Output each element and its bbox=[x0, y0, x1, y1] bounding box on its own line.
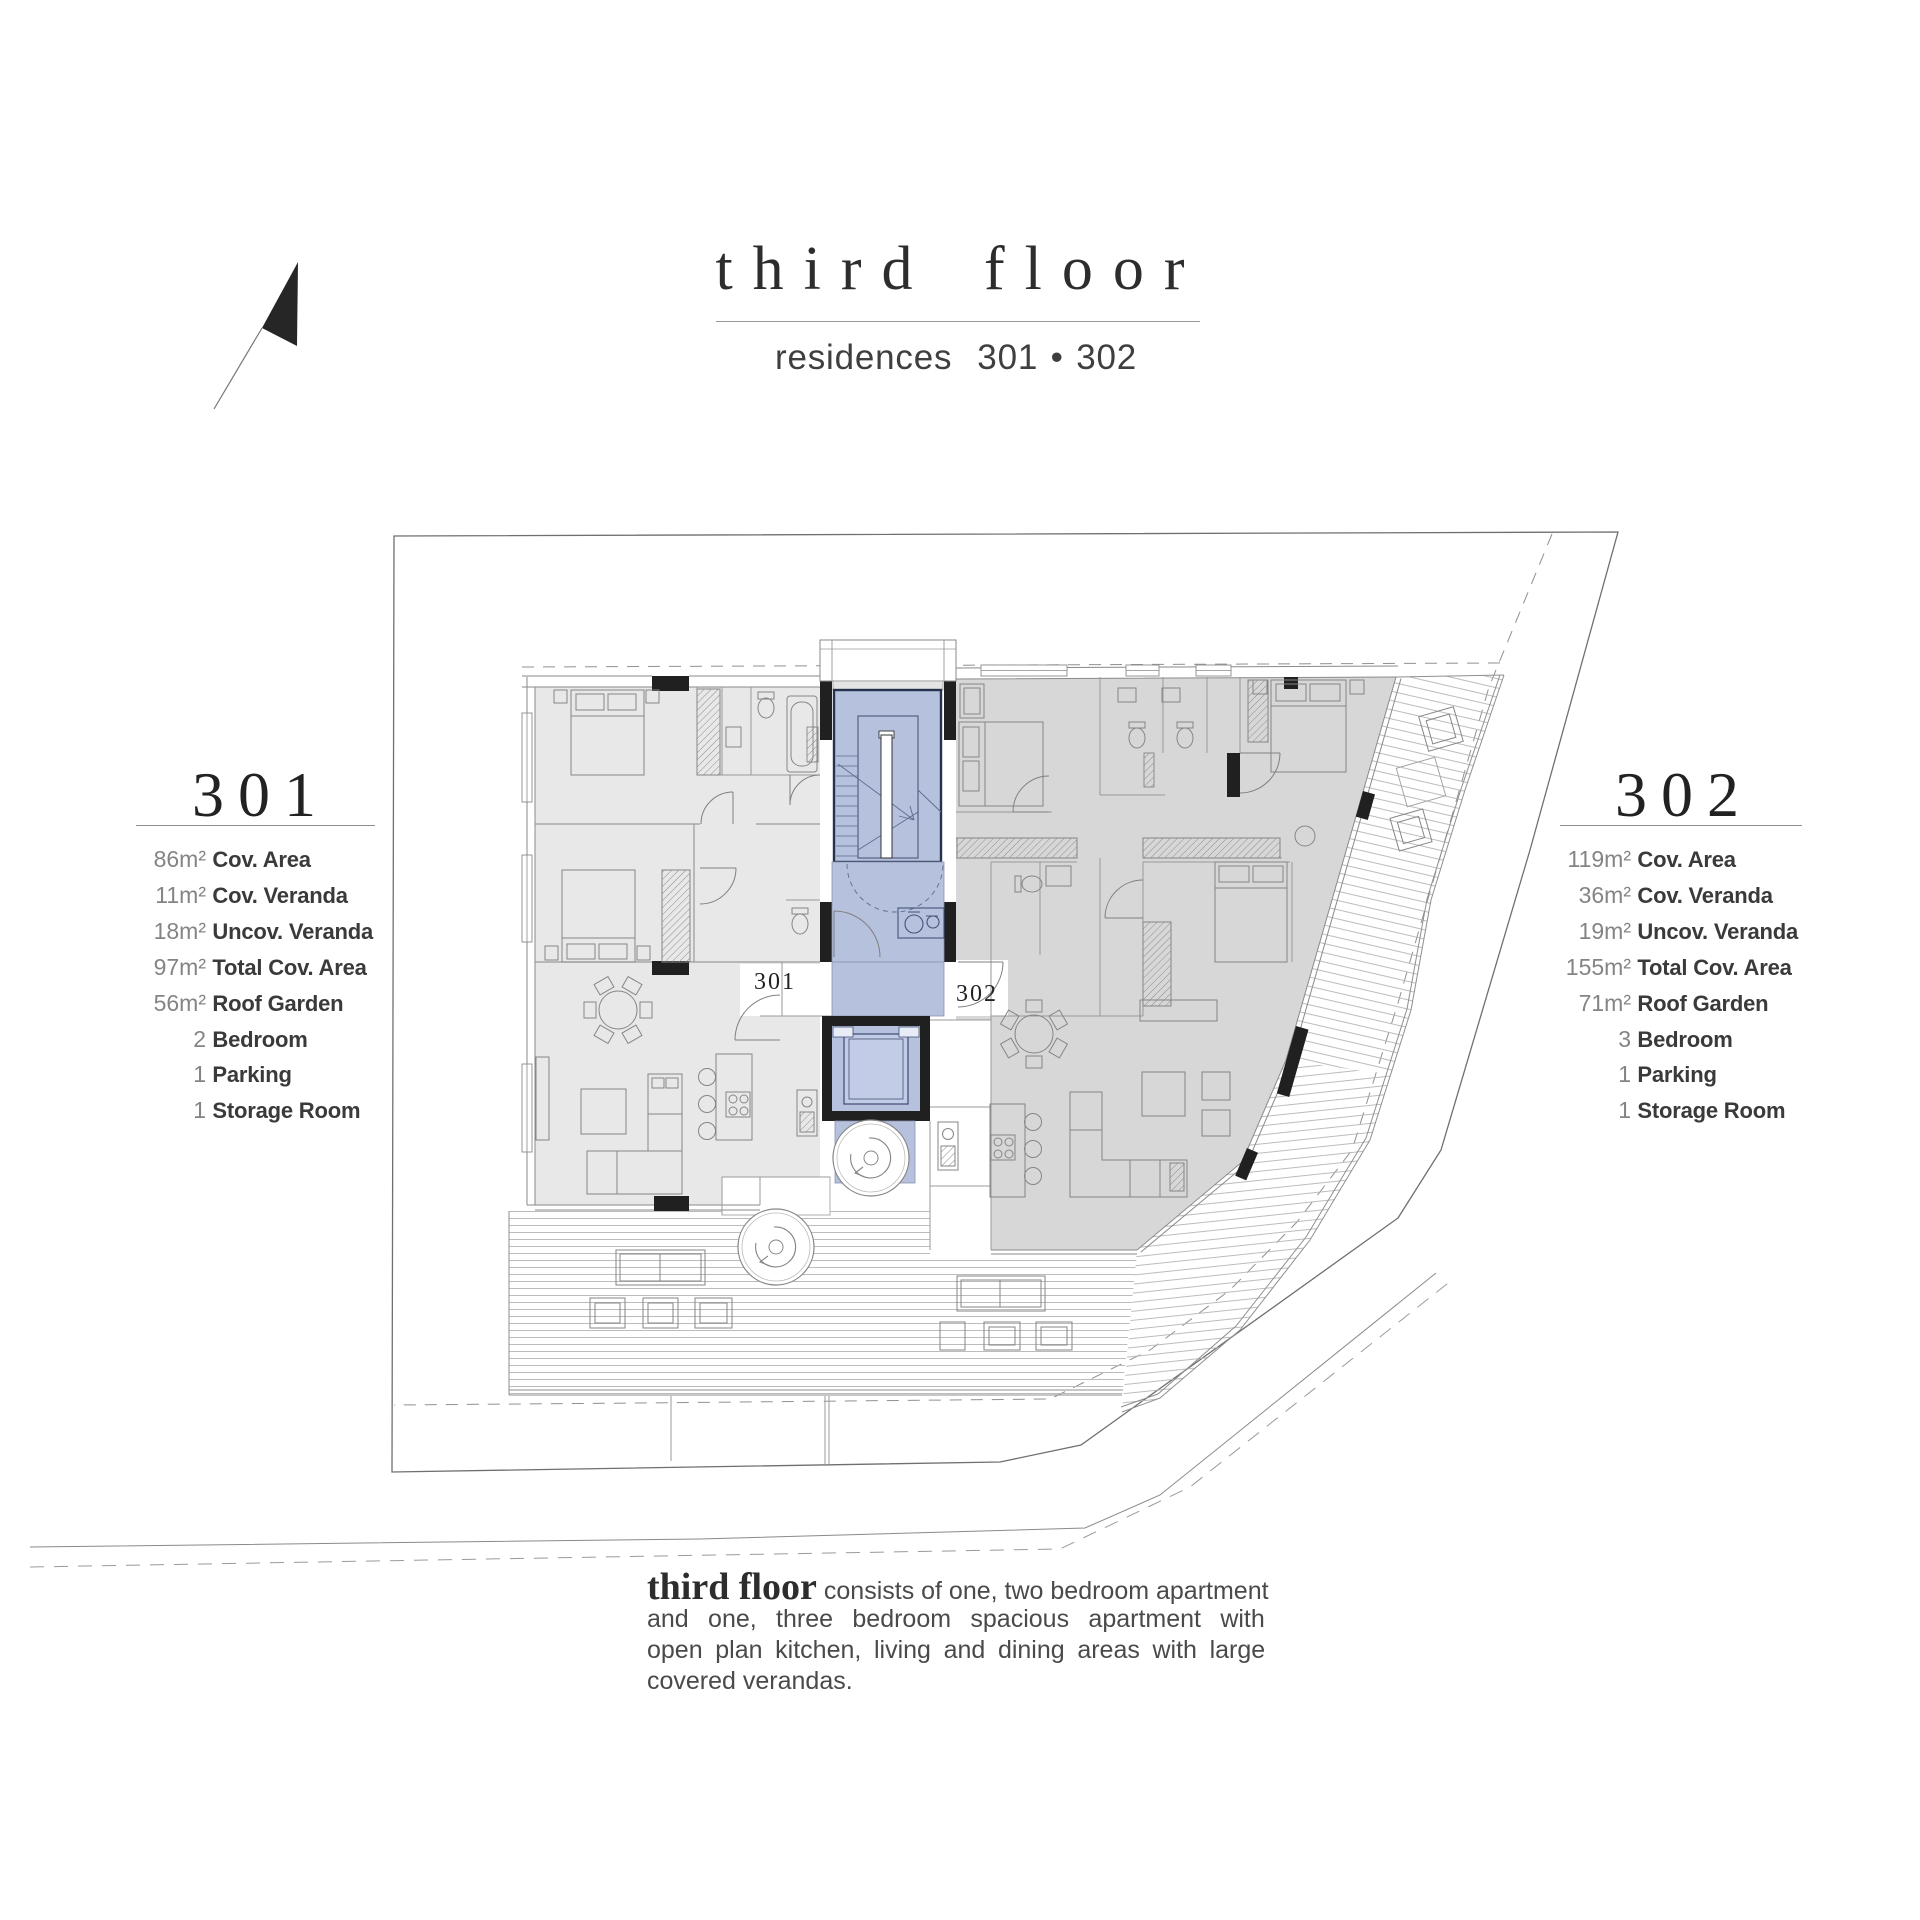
svg-text:302: 302 bbox=[956, 981, 998, 1007]
svg-text:301: 301 bbox=[754, 969, 796, 995]
